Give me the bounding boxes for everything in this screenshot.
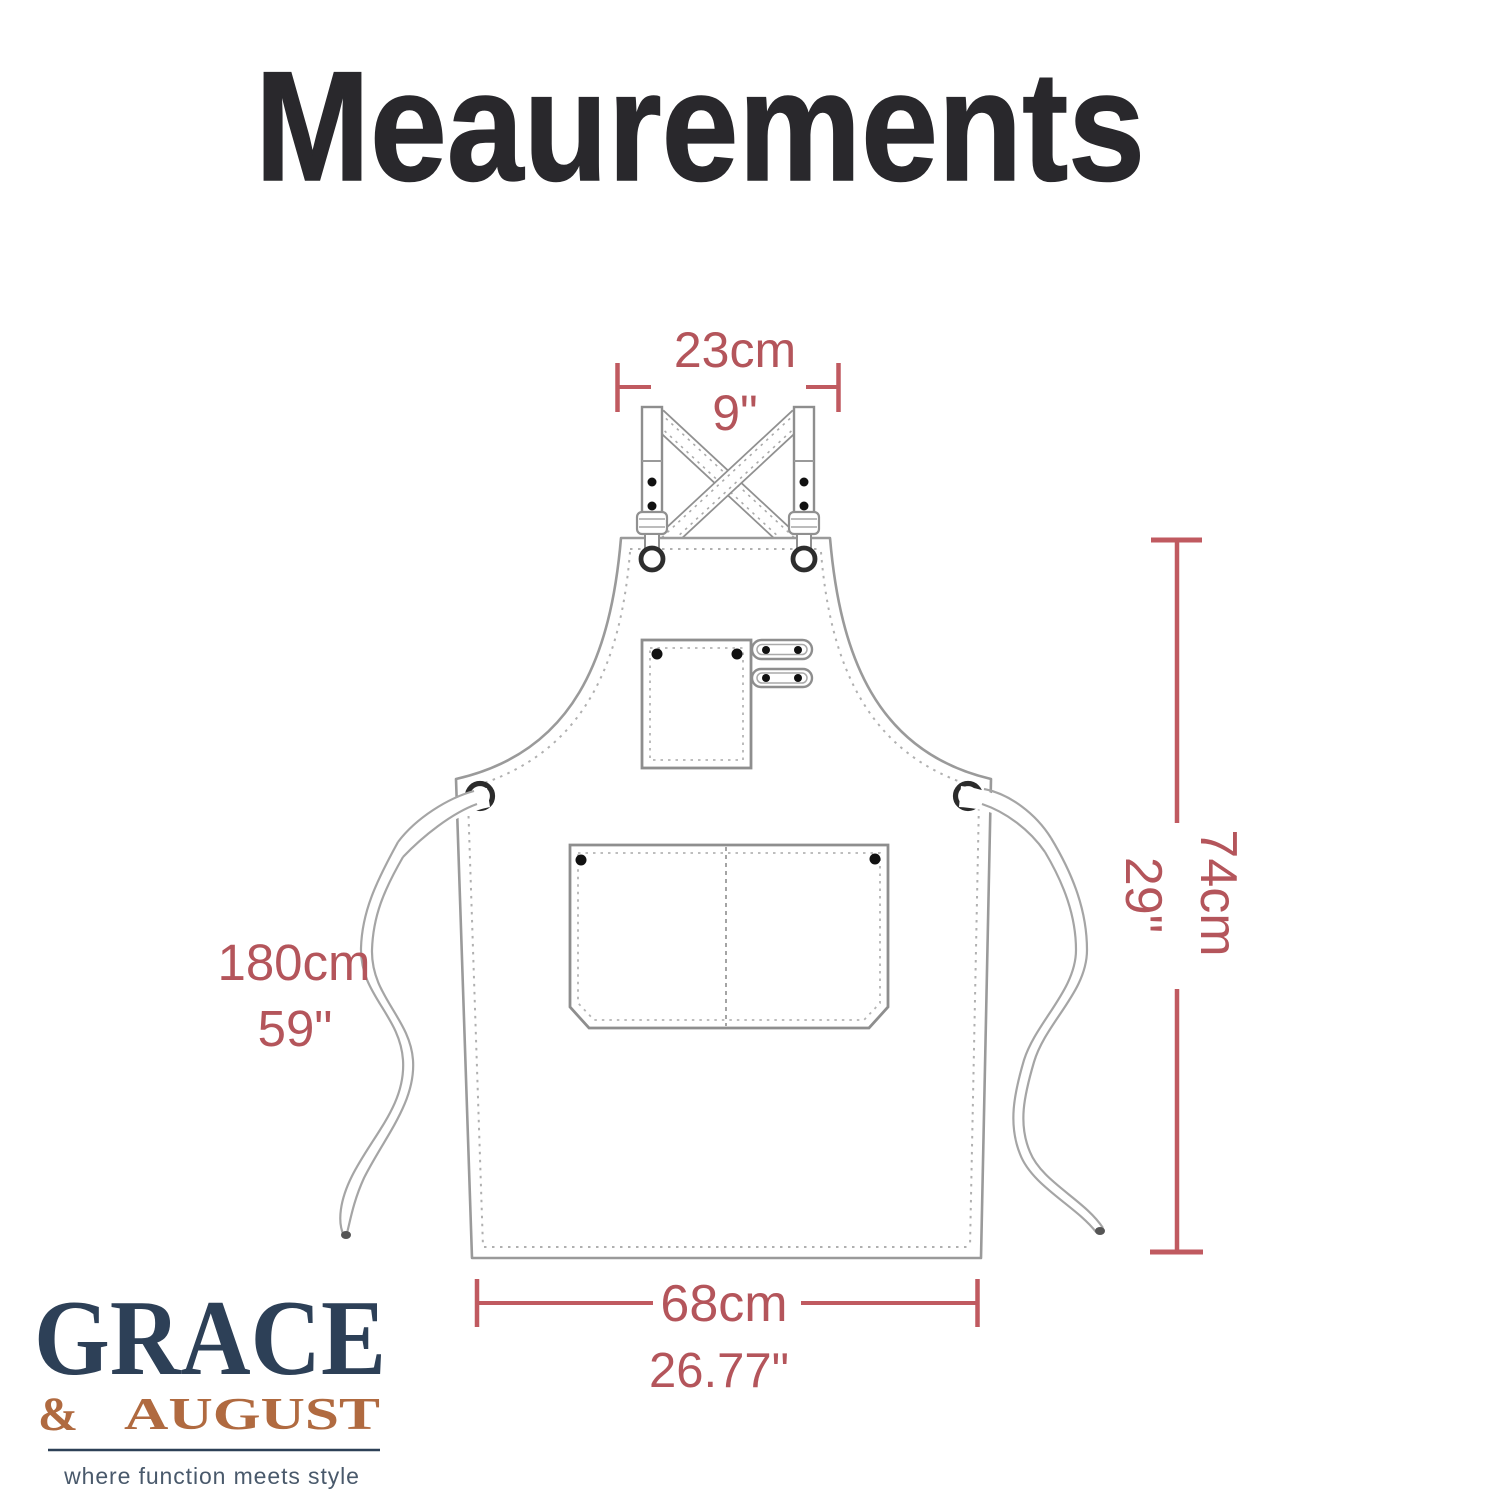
svg-text:23cm: 23cm: [674, 322, 796, 378]
svg-text:&: &: [38, 1388, 78, 1441]
svg-text:26.77": 26.77": [649, 1344, 789, 1398]
svg-text:where function meets style: where function meets style: [63, 1463, 360, 1489]
svg-text:AUGUST: AUGUST: [124, 1388, 380, 1439]
svg-text:74cm: 74cm: [1189, 829, 1247, 956]
svg-text:9": 9": [712, 385, 758, 441]
svg-text:59": 59": [258, 1000, 333, 1057]
svg-text:Meaurements: Meaurements: [255, 40, 1145, 214]
svg-text:GRACE: GRACE: [34, 1279, 386, 1398]
svg-text:68cm: 68cm: [660, 1275, 787, 1333]
svg-text:29": 29": [1114, 857, 1172, 933]
svg-text:180cm: 180cm: [217, 934, 370, 991]
